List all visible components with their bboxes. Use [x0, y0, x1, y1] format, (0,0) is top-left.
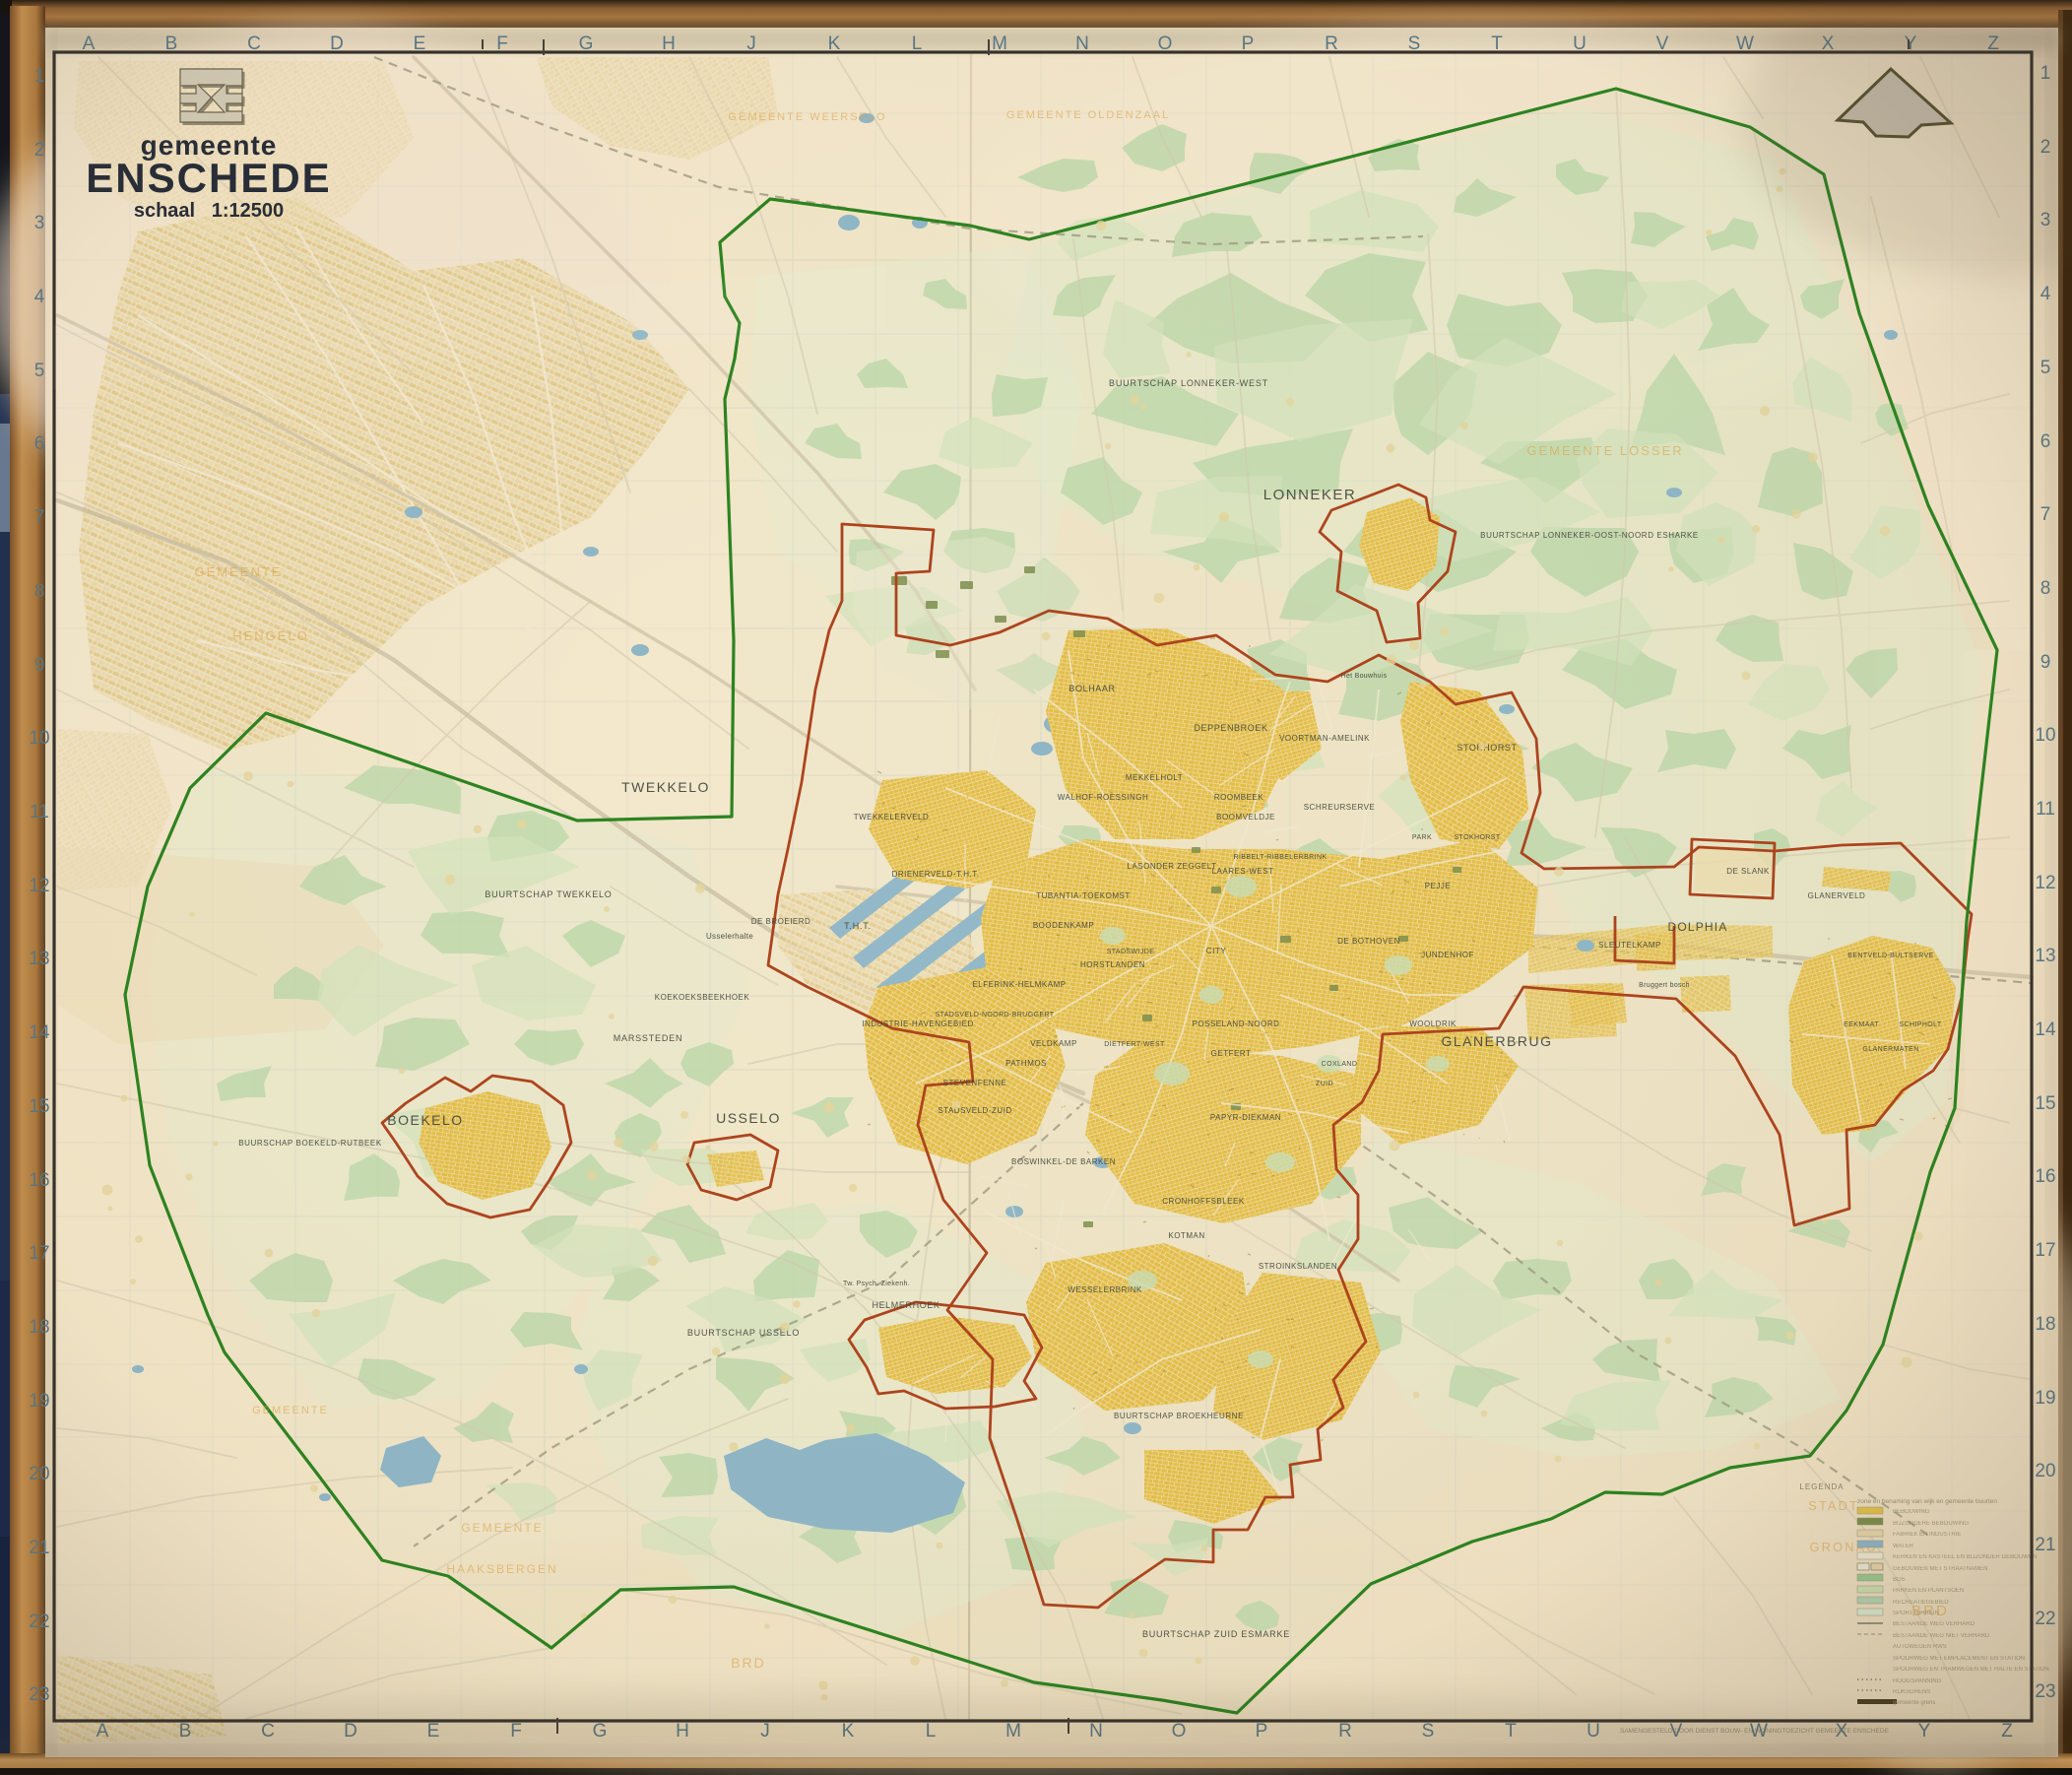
svg-text:8: 8 [34, 581, 45, 602]
svg-text:7: 7 [34, 507, 45, 528]
svg-text:2: 2 [34, 140, 45, 161]
svg-text:9: 9 [34, 655, 45, 676]
svg-text:4: 4 [34, 287, 45, 307]
svg-text:5: 5 [34, 361, 45, 381]
svg-text:1: 1 [34, 66, 45, 87]
svg-text:6: 6 [34, 433, 45, 454]
svg-text:3: 3 [34, 213, 45, 233]
